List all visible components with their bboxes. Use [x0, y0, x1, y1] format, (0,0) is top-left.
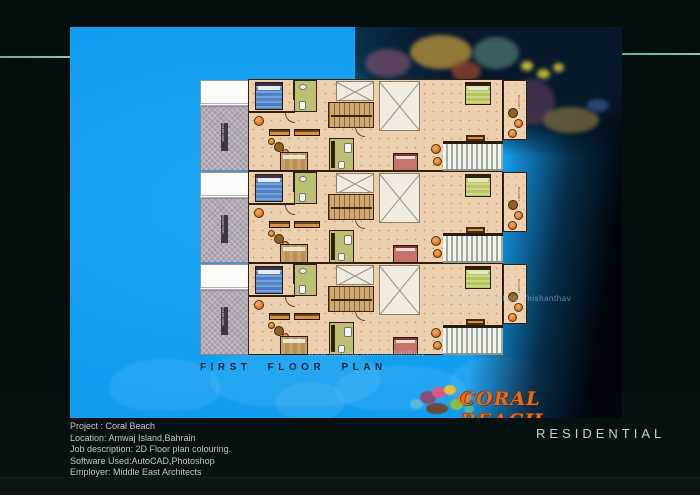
void-open-below	[336, 173, 374, 193]
staircase	[328, 286, 374, 312]
shower	[344, 143, 352, 153]
bathroom-2	[329, 230, 354, 263]
void-double-height	[379, 265, 420, 315]
courtyard-label: COURTYARD	[221, 307, 228, 335]
coral-silhouette	[275, 382, 345, 418]
void-open-below	[336, 265, 374, 285]
toilet	[338, 161, 345, 169]
toilet	[299, 285, 306, 294]
underwater-scene-panel: COURTYARD	[70, 27, 622, 418]
bed	[280, 336, 308, 355]
armchair	[254, 116, 264, 126]
bottom-strip	[0, 477, 700, 495]
unit-2: COURTYARD	[200, 171, 530, 263]
presentation-board: COURTYARD	[0, 0, 700, 495]
pergola-deck	[443, 141, 503, 171]
project-logo: CORAL BEACH	[460, 388, 622, 418]
info-line-location: Location: Amwaj Island,Bahrain	[70, 433, 231, 445]
category-label: RESIDENTIAL	[536, 426, 665, 441]
dining-chair	[268, 230, 275, 237]
staircase	[328, 102, 374, 128]
info-line-software: Software Used:AutoCAD,Photoshop	[70, 456, 231, 468]
void-open-below	[336, 81, 374, 101]
coral-red	[451, 61, 481, 81]
wardrobe	[269, 313, 290, 320]
bed	[393, 245, 418, 263]
patio-chair	[508, 129, 517, 138]
sink	[299, 268, 307, 274]
balcony: BALCONY	[503, 80, 527, 140]
entry-canopy	[200, 264, 252, 290]
yellow-fish	[537, 69, 550, 79]
door-swing	[285, 297, 295, 307]
master-bed	[255, 82, 283, 110]
bathroom-1	[294, 80, 317, 112]
coral-green	[473, 37, 519, 69]
patio-chair	[508, 313, 517, 322]
balcony: BALCONY	[503, 172, 527, 232]
void-double-height	[379, 173, 420, 223]
shower	[344, 327, 352, 337]
armchair	[433, 249, 442, 258]
door-swing	[355, 219, 365, 229]
bed	[280, 244, 308, 263]
teal-divider-left	[0, 56, 70, 58]
wardrobe	[294, 221, 320, 228]
watermark: www.coroflot.com/nishanthav	[308, 349, 425, 358]
bed	[465, 82, 491, 105]
coral-blue	[410, 399, 423, 409]
round-table	[508, 108, 518, 118]
armchair	[431, 236, 441, 246]
master-bed	[255, 174, 283, 202]
armchair	[431, 328, 441, 338]
courtyard-label: COURTYARD	[221, 123, 228, 151]
unit-3: COURTYARD	[200, 263, 530, 355]
bed	[393, 153, 418, 171]
staircase	[328, 194, 374, 220]
yellow-fish	[553, 63, 564, 72]
patio-chair	[514, 119, 523, 128]
floor-plan: COURTYARD	[200, 79, 530, 356]
entry-canopy	[200, 172, 252, 198]
pergola-deck	[443, 233, 503, 263]
sink	[299, 176, 307, 182]
paved-courtyard: COURTYARD	[200, 198, 250, 263]
bed	[465, 266, 491, 289]
pergola-deck	[443, 325, 503, 355]
plan-title: FIRST FLOOR PLAN	[200, 362, 387, 373]
bathroom-1	[294, 172, 317, 204]
paved-courtyard: COURTYARD	[200, 106, 250, 171]
patio-chair	[514, 303, 523, 312]
wardrobe	[269, 221, 290, 228]
toilet	[299, 193, 306, 202]
round-table	[508, 200, 518, 210]
coral-purple	[365, 49, 411, 77]
door-swing	[285, 113, 295, 123]
entry-canopy	[200, 80, 252, 106]
paved-courtyard: COURTYARD	[200, 290, 250, 355]
wardrobe	[269, 129, 290, 136]
armchair	[433, 341, 442, 350]
info-line-description: Job description: 2D Floor plan colouring…	[70, 444, 231, 456]
bathroom-1	[294, 264, 317, 296]
dining-chair	[268, 138, 275, 145]
wardrobe	[294, 313, 320, 320]
toilet	[299, 101, 306, 110]
void-double-height	[379, 81, 420, 131]
yellow-fish	[521, 61, 533, 71]
master-bed	[255, 266, 283, 294]
armchair	[254, 208, 264, 218]
door-swing	[355, 127, 365, 137]
bed	[280, 152, 308, 171]
sink	[299, 84, 307, 90]
bathroom-2	[329, 138, 354, 171]
coral-yellow	[444, 385, 456, 395]
courtyard-label: COURTYARD	[221, 215, 228, 243]
patio-chair	[508, 221, 517, 230]
shower	[344, 235, 352, 245]
coral-rock	[543, 107, 599, 133]
blue-fish	[587, 99, 609, 112]
armchair	[254, 300, 264, 310]
bed	[465, 174, 491, 197]
unit-1: COURTYARD	[200, 79, 530, 171]
dining-chair	[268, 322, 275, 329]
wardrobe	[294, 129, 320, 136]
toilet	[338, 253, 345, 261]
watermark: www.coroflot.com/nishanthav	[454, 294, 571, 303]
coral-rock	[426, 403, 448, 414]
door-swing	[355, 311, 365, 321]
patio-chair	[514, 211, 523, 220]
armchair	[431, 144, 441, 154]
teal-divider-right	[622, 53, 700, 55]
armchair	[433, 157, 442, 166]
info-line-project: Project : Coral Beach	[70, 421, 231, 433]
door-swing	[285, 205, 295, 215]
